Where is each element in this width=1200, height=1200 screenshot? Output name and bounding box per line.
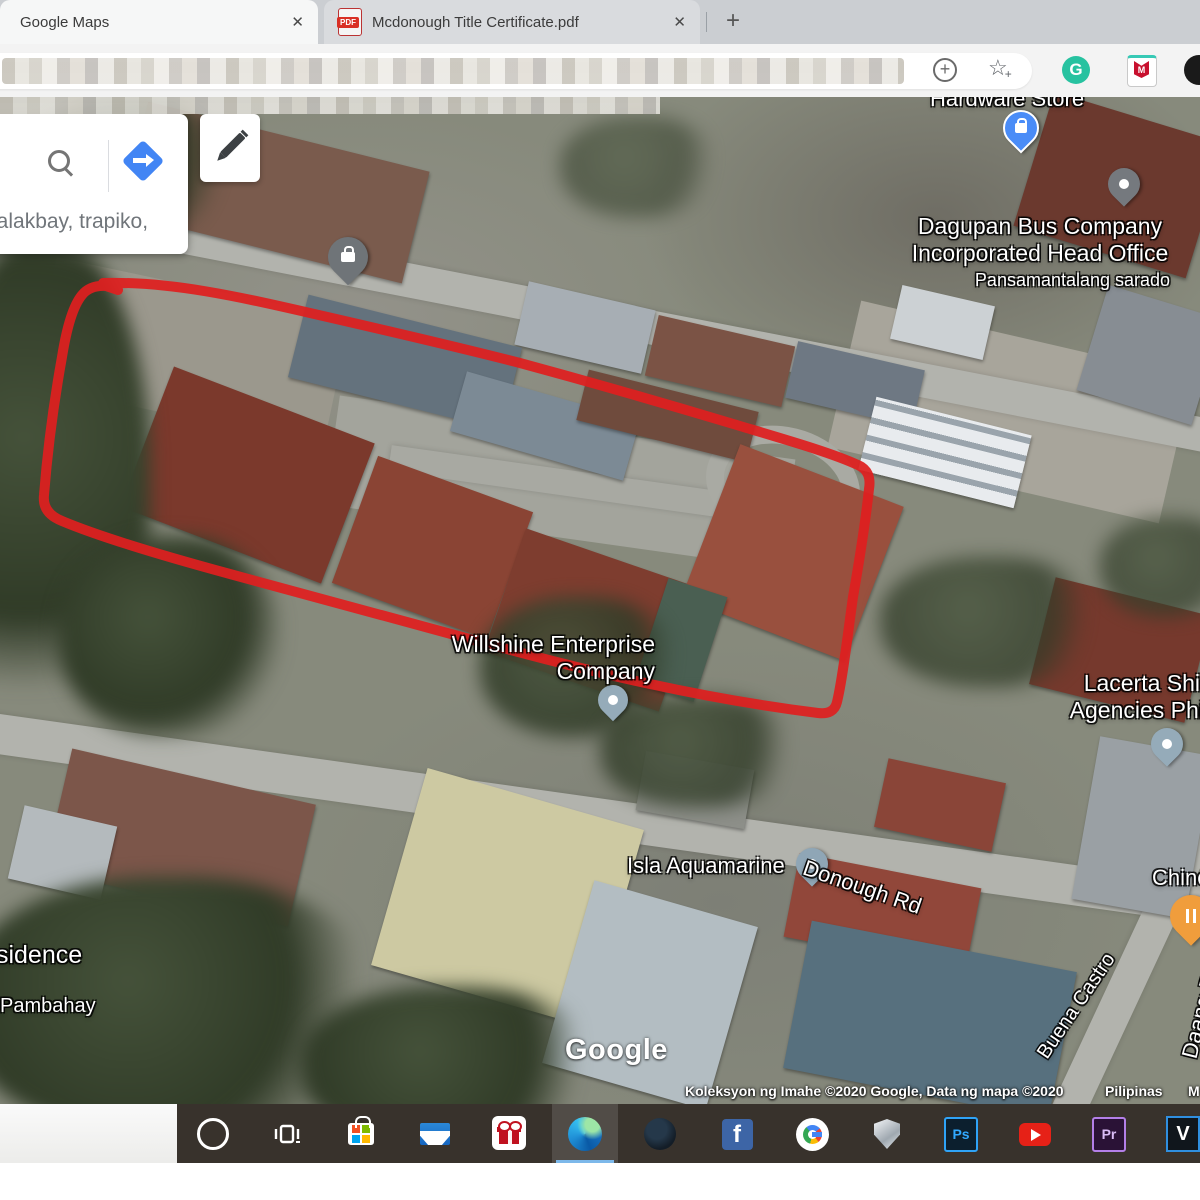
grammarly-extension-icon[interactable]: G bbox=[1062, 56, 1090, 84]
close-tab-icon[interactable]: ✕ bbox=[673, 13, 686, 31]
store-bag-icon bbox=[348, 1123, 374, 1145]
shield-icon bbox=[874, 1119, 900, 1149]
map-label-pambahay[interactable]: Pambahay bbox=[0, 995, 96, 1018]
collections-icon[interactable]: + bbox=[933, 58, 959, 84]
address-bar[interactable] bbox=[0, 53, 1032, 89]
tab-title: Mcdonough Title Certificate.pdf bbox=[372, 14, 579, 31]
tab-divider bbox=[706, 12, 707, 32]
new-tab-button[interactable]: + bbox=[718, 8, 748, 36]
mcafee-extension-icon[interactable]: M bbox=[1127, 55, 1157, 87]
map-attribution-region[interactable]: Pilipinas bbox=[1105, 1083, 1163, 1099]
cortana-circle-icon bbox=[197, 1118, 229, 1150]
pdf-file-icon: PDF bbox=[338, 8, 362, 36]
task-view-icon bbox=[273, 1122, 301, 1146]
microsoft-store-button[interactable] bbox=[344, 1117, 378, 1151]
edge-browser-button[interactable] bbox=[568, 1117, 602, 1151]
profile-avatar[interactable] bbox=[1184, 55, 1200, 85]
tab-pdf-certificate[interactable]: PDF Mcdonough Title Certificate.pdf ✕ bbox=[324, 0, 700, 44]
favorite-star-icon[interactable]: ☆+ bbox=[988, 56, 1014, 82]
task-view-button[interactable] bbox=[270, 1117, 304, 1151]
dark-app-button[interactable] bbox=[643, 1117, 677, 1151]
map-label-isla-aquamarine[interactable]: Isla Aquamarine bbox=[627, 853, 785, 879]
youtube-icon bbox=[1019, 1123, 1051, 1146]
photoshop-icon: Ps bbox=[944, 1117, 978, 1152]
map-label-chinese[interactable]: Chines bbox=[1152, 865, 1200, 891]
draw-tool-button[interactable] bbox=[200, 114, 260, 182]
mail-envelope-icon bbox=[420, 1123, 450, 1145]
restaurant-pin[interactable] bbox=[1170, 895, 1200, 955]
search-icon[interactable] bbox=[48, 150, 70, 172]
security-shield-button[interactable] bbox=[870, 1117, 904, 1151]
premiere-button[interactable]: Pr bbox=[1092, 1117, 1126, 1151]
taskbar-left-blank bbox=[0, 1104, 177, 1163]
pencil-icon bbox=[200, 114, 260, 182]
map-label-dagupan-status: Pansamantalang sarado bbox=[960, 270, 1185, 291]
closed-place-pin[interactable] bbox=[328, 237, 368, 295]
blurred-strip bbox=[0, 97, 660, 114]
map-label-lacerta[interactable]: Lacerta Shipping Agencies Phils., Inc bbox=[1005, 670, 1200, 724]
start-button[interactable] bbox=[196, 1117, 230, 1151]
dark-emblem-icon bbox=[644, 1118, 676, 1150]
willshine-pin[interactable] bbox=[598, 685, 628, 729]
mail-button[interactable] bbox=[418, 1117, 452, 1151]
facebook-icon: f bbox=[722, 1119, 753, 1150]
map-attribution-more[interactable]: M bbox=[1188, 1083, 1200, 1099]
directions-arrow-icon bbox=[133, 158, 147, 163]
fork-knife-icon bbox=[1170, 895, 1200, 937]
facebook-button[interactable]: f bbox=[720, 1117, 754, 1151]
lacerta-pin[interactable] bbox=[1151, 728, 1183, 774]
maps-search-card[interactable]: lalakbay, trapiko, bbox=[0, 114, 188, 254]
windows-taskbar: f Ps Pr V bbox=[0, 1104, 1200, 1163]
map-attribution: Koleksyon ng Imahe ©2020 Google, Data ng… bbox=[685, 1083, 1064, 1099]
map-label-dagupan[interactable]: Dagupan Bus Company Incorporated Head Of… bbox=[895, 213, 1185, 267]
hardware-store-pin[interactable] bbox=[1003, 110, 1039, 162]
v-app-icon: V bbox=[1166, 1116, 1200, 1152]
photoshop-button[interactable]: Ps bbox=[944, 1117, 978, 1151]
browser-toolbar: + ☆+ G M bbox=[0, 44, 1200, 98]
address-blurred-text bbox=[2, 58, 904, 84]
google-button[interactable] bbox=[795, 1117, 829, 1151]
map-satellite-view[interactable]: Hardware Store Dagupan Bus Company Incor… bbox=[0, 97, 1200, 1104]
search-input-text[interactable]: lalakbay, trapiko, bbox=[0, 210, 148, 234]
video-editor-button[interactable]: V bbox=[1166, 1117, 1200, 1151]
map-label-willshine[interactable]: Willshine Enterprise Company bbox=[418, 631, 655, 685]
tab-google-maps[interactable]: Google Maps ✕ bbox=[0, 0, 318, 44]
map-label-hardware-store[interactable]: Hardware Store bbox=[930, 97, 1084, 112]
google-g-icon bbox=[796, 1118, 829, 1151]
tab-title: Google Maps bbox=[20, 14, 109, 31]
premiere-icon: Pr bbox=[1092, 1117, 1126, 1152]
bottom-white-area bbox=[0, 1163, 1200, 1200]
close-tab-icon[interactable]: ✕ bbox=[291, 13, 304, 31]
shopping-bag-icon bbox=[1003, 110, 1039, 146]
tab-strip: Google Maps ✕ PDF Mcdonough Title Certif… bbox=[0, 0, 1200, 44]
google-watermark: Google bbox=[565, 1034, 668, 1067]
search-divider bbox=[108, 140, 109, 192]
dagupan-pin[interactable] bbox=[1108, 168, 1140, 215]
lock-icon bbox=[328, 237, 368, 277]
gift-app-button[interactable] bbox=[492, 1116, 526, 1150]
map-label-residence[interactable]: Residence bbox=[0, 941, 82, 970]
gift-icon bbox=[492, 1116, 526, 1150]
edge-icon bbox=[568, 1117, 602, 1151]
youtube-button[interactable] bbox=[1018, 1117, 1052, 1151]
